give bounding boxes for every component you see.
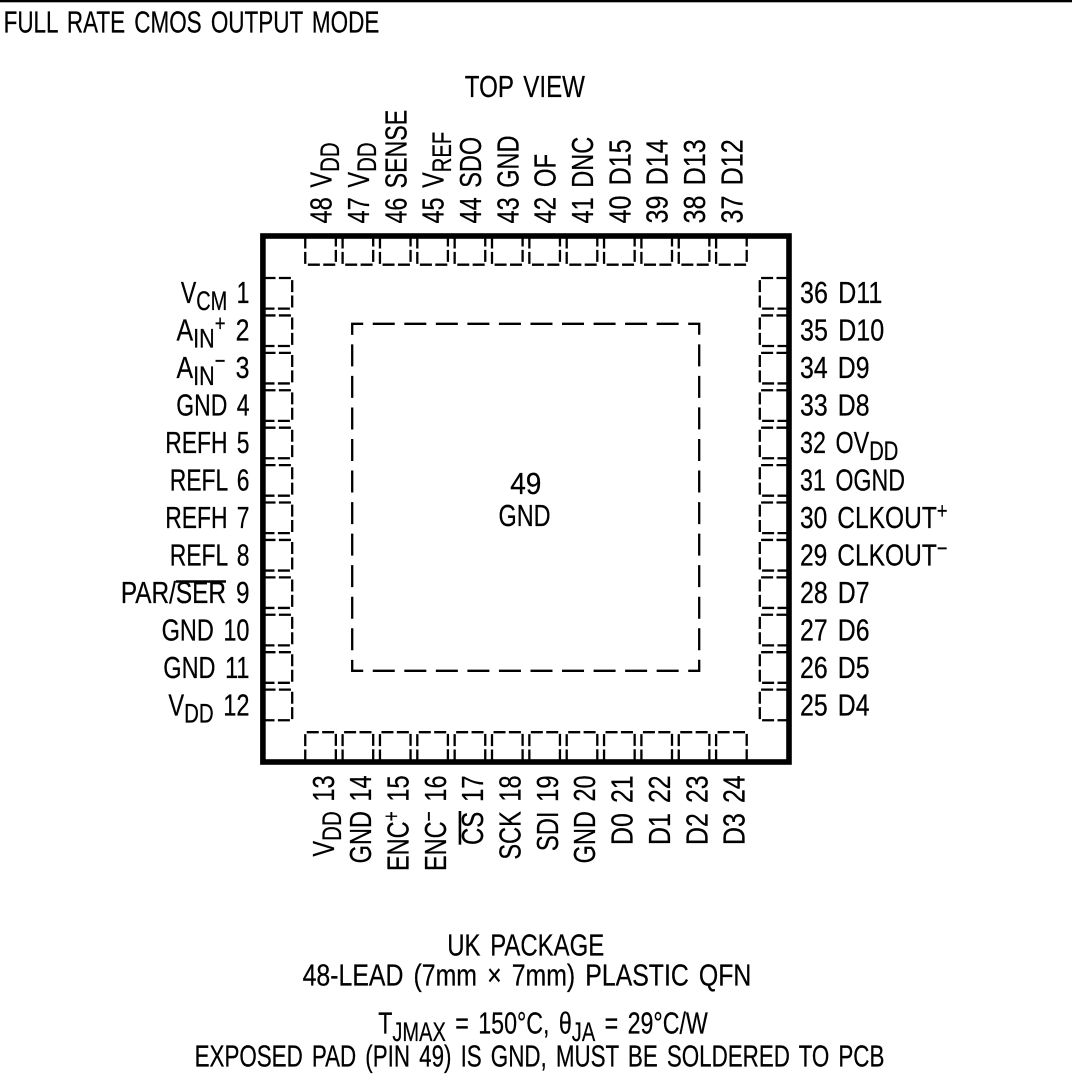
svg-text:25 D4: 25 D4 — [800, 688, 870, 722]
svg-text:REFL 8: REFL 8 — [170, 537, 250, 572]
svg-text:31 OGND: 31 OGND — [800, 462, 905, 497]
svg-text:39 D14: 39 D14 — [639, 139, 674, 223]
svg-text:37 D12: 37 D12 — [714, 139, 749, 223]
svg-text:40 D15: 40 D15 — [602, 139, 637, 223]
svg-text:38 D13: 38 D13 — [676, 139, 711, 223]
svg-text:D0 21: D0 21 — [605, 775, 639, 845]
svg-text:49: 49 — [510, 467, 541, 502]
svg-text:GND 10: GND 10 — [162, 612, 250, 647]
svg-text:SDI 19: SDI 19 — [530, 775, 565, 851]
svg-text:42 OF: 42 OF — [528, 154, 563, 224]
svg-text:FULL RATE CMOS OUTPUT MODE: FULL RATE CMOS OUTPUT MODE — [4, 4, 380, 39]
svg-text:GND: GND — [498, 498, 550, 533]
svg-text:GND 14: GND 14 — [343, 775, 378, 863]
svg-text:46 SENSE: 46 SENSE — [378, 110, 413, 224]
svg-text:29 CLKOUT−: 29 CLKOUT− — [800, 536, 947, 572]
svg-text:26 D5: 26 D5 — [800, 650, 870, 684]
svg-text:GND 4: GND 4 — [176, 387, 249, 422]
svg-text:27 D6: 27 D6 — [800, 613, 870, 647]
svg-text:SCK 18: SCK 18 — [492, 775, 527, 859]
svg-text:D2 23: D2 23 — [680, 775, 714, 845]
svg-text:REFH 5: REFH 5 — [165, 425, 249, 460]
svg-text:44 SDO: 44 SDO — [453, 137, 488, 224]
svg-text:REFL 6: REFL 6 — [170, 462, 250, 497]
svg-text:30 CLKOUT+: 30 CLKOUT+ — [800, 499, 947, 535]
svg-text:ENC− 16: ENC− 16 — [417, 775, 452, 871]
svg-text:ENC+ 15: ENC+ 15 — [380, 775, 415, 871]
svg-text:D1 22: D1 22 — [642, 775, 676, 845]
svg-text:33 D8: 33 D8 — [800, 388, 870, 422]
svg-text:41 DNC: 41 DNC — [565, 137, 600, 224]
svg-text:D3 24: D3 24 — [717, 775, 751, 845]
svg-text:36 D11: 36 D11 — [800, 274, 882, 309]
svg-text:REFH 7: REFH 7 — [165, 500, 249, 535]
svg-text:34 D9: 34 D9 — [800, 350, 870, 384]
svg-text:35 D10: 35 D10 — [800, 312, 884, 347]
svg-text:48-LEAD (7mm × 7mm) PLASTIC QF: 48-LEAD (7mm × 7mm) PLASTIC QFN — [303, 958, 752, 992]
svg-text:GND 11: GND 11 — [163, 650, 249, 685]
svg-text:43 GND: 43 GND — [490, 136, 525, 224]
svg-text:TOP VIEW: TOP VIEW — [465, 69, 586, 104]
svg-text:28 D7: 28 D7 — [800, 575, 870, 609]
svg-text:EXPOSED PAD (PIN 49) IS GND, M: EXPOSED PAD (PIN 49) IS GND, MUST BE SOL… — [195, 1039, 885, 1073]
svg-text:GND 20: GND 20 — [567, 775, 602, 863]
